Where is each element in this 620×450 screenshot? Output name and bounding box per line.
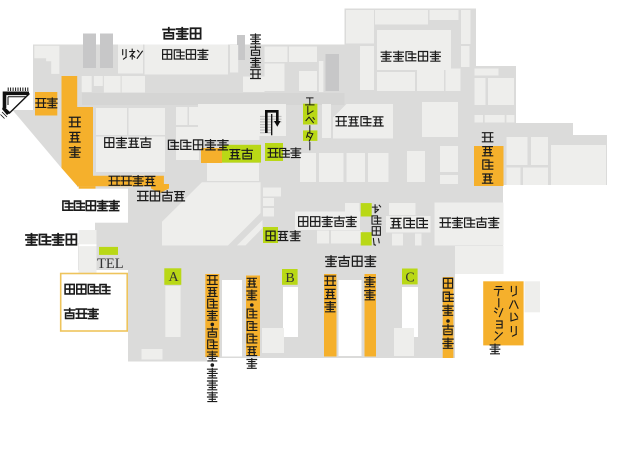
- svg-text:A: A: [168, 270, 179, 285]
- svg-text:B: B: [285, 271, 294, 286]
- svg-text:TEL: TEL: [97, 256, 124, 272]
- svg-text:C: C: [405, 271, 414, 286]
